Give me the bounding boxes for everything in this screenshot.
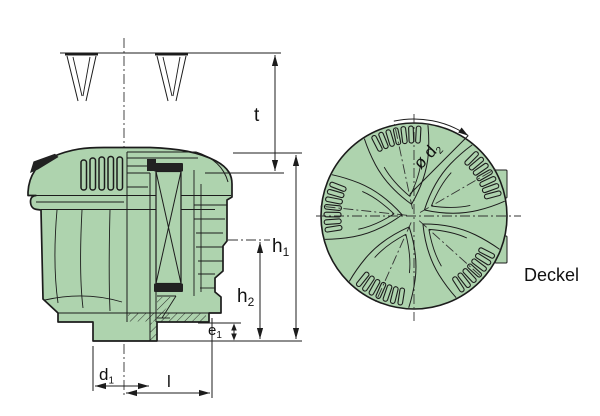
- technical-drawing: t h1 h2 e1 d1 l: [0, 0, 600, 416]
- element-bottom-seal: [154, 284, 183, 293]
- dimension-label-l: l: [167, 372, 171, 391]
- top-view-deckel: ø d2 Deckel: [316, 114, 579, 321]
- filter-element-section: [154, 163, 183, 292]
- mounting-screw-cones: [65, 54, 188, 101]
- caption-deckel: Deckel: [524, 265, 579, 285]
- dimension-d1: d1: [93, 346, 149, 391]
- dimension-label-t: t: [254, 105, 260, 126]
- dimension-e1: e1: [198, 322, 241, 341]
- dimension-label-d1: d1: [99, 365, 114, 387]
- dimension-h2: h2: [237, 242, 260, 339]
- plate-hatch: [128, 314, 206, 322]
- dimension-label-e1: e1: [208, 322, 222, 341]
- element-top-seal: [154, 163, 183, 172]
- drawing-canvas: t h1 h2 e1 d1 l: [0, 0, 600, 416]
- dimension-label-h1: h1: [272, 236, 290, 259]
- dimension-label-h2: h2: [237, 286, 255, 309]
- side-view-section: t h1 h2 e1 d1 l: [28, 38, 302, 398]
- spigot-wall-hatch: [151, 323, 158, 341]
